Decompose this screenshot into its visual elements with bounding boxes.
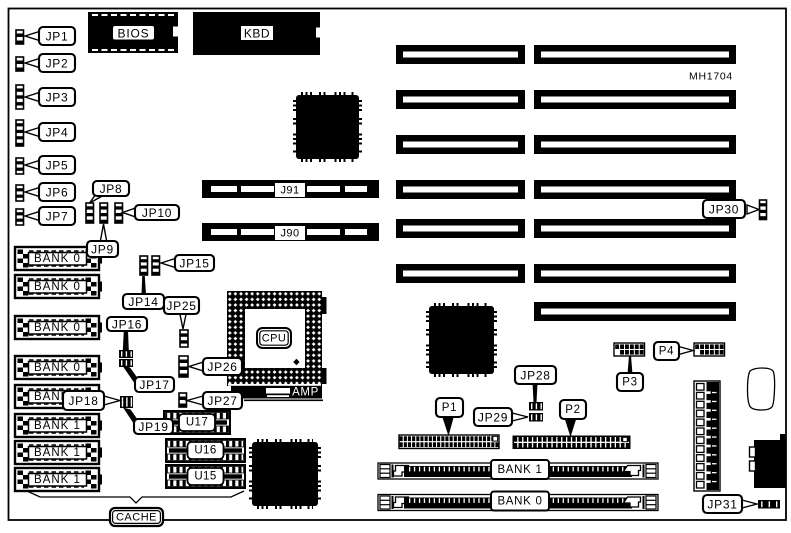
svg-text:BANK 0: BANK 0 xyxy=(34,322,81,334)
svg-text:JP15: JP15 xyxy=(179,257,209,271)
svg-text:P2: P2 xyxy=(565,404,580,416)
svg-text:JP9: JP9 xyxy=(91,243,114,257)
svg-text:JP19: JP19 xyxy=(138,420,168,434)
svg-text:BANK 0: BANK 0 xyxy=(497,495,542,507)
svg-text:JP26: JP26 xyxy=(207,360,237,374)
svg-text:AMP: AMP xyxy=(292,387,319,399)
svg-text:U17: U17 xyxy=(186,417,208,429)
svg-text:BANK 0: BANK 0 xyxy=(34,281,81,293)
svg-text:BANK 0: BANK 0 xyxy=(34,253,81,265)
svg-text:JP27: JP27 xyxy=(207,394,237,408)
svg-text:BANK 1: BANK 1 xyxy=(34,447,81,459)
svg-text:JP25: JP25 xyxy=(166,299,196,313)
svg-text:JP6: JP6 xyxy=(46,186,69,200)
svg-text:JP14: JP14 xyxy=(128,295,158,309)
svg-text:U16: U16 xyxy=(194,445,216,457)
svg-text:JP4: JP4 xyxy=(46,126,69,140)
svg-text:BANK 0: BANK 0 xyxy=(34,362,81,374)
svg-text:J90: J90 xyxy=(281,227,300,239)
svg-text:KBD: KBD xyxy=(244,27,270,41)
svg-text:BIOS: BIOS xyxy=(118,26,150,40)
svg-text:JP18: JP18 xyxy=(68,394,98,408)
svg-text:P4: P4 xyxy=(659,346,674,358)
svg-text:JP3: JP3 xyxy=(46,91,69,105)
svg-text:JP17: JP17 xyxy=(139,378,169,392)
svg-text:JP16: JP16 xyxy=(112,318,142,332)
svg-text:CPU: CPU xyxy=(262,333,286,345)
svg-text:JP5: JP5 xyxy=(46,159,69,173)
svg-text:BANK 1: BANK 1 xyxy=(497,464,542,476)
svg-text:P3: P3 xyxy=(622,377,637,389)
svg-text:JP31: JP31 xyxy=(707,498,737,512)
svg-text:JP10: JP10 xyxy=(142,206,172,220)
svg-text:JP7: JP7 xyxy=(46,210,69,224)
svg-text:P1: P1 xyxy=(442,402,457,414)
svg-text:BANK 1: BANK 1 xyxy=(34,420,81,432)
svg-text:JP2: JP2 xyxy=(46,57,69,71)
svg-text:U15: U15 xyxy=(194,471,216,483)
svg-text:JP29: JP29 xyxy=(478,411,508,425)
svg-text:MH1704: MH1704 xyxy=(689,71,733,83)
svg-text:JP30: JP30 xyxy=(709,203,739,217)
svg-text:CACHE: CACHE xyxy=(116,511,157,523)
svg-text:JP8: JP8 xyxy=(100,182,123,196)
svg-text:JP28: JP28 xyxy=(520,369,550,383)
svg-text:JP1: JP1 xyxy=(46,30,69,44)
svg-text:BANK 1: BANK 1 xyxy=(34,474,81,486)
svg-text:J91: J91 xyxy=(281,184,300,196)
